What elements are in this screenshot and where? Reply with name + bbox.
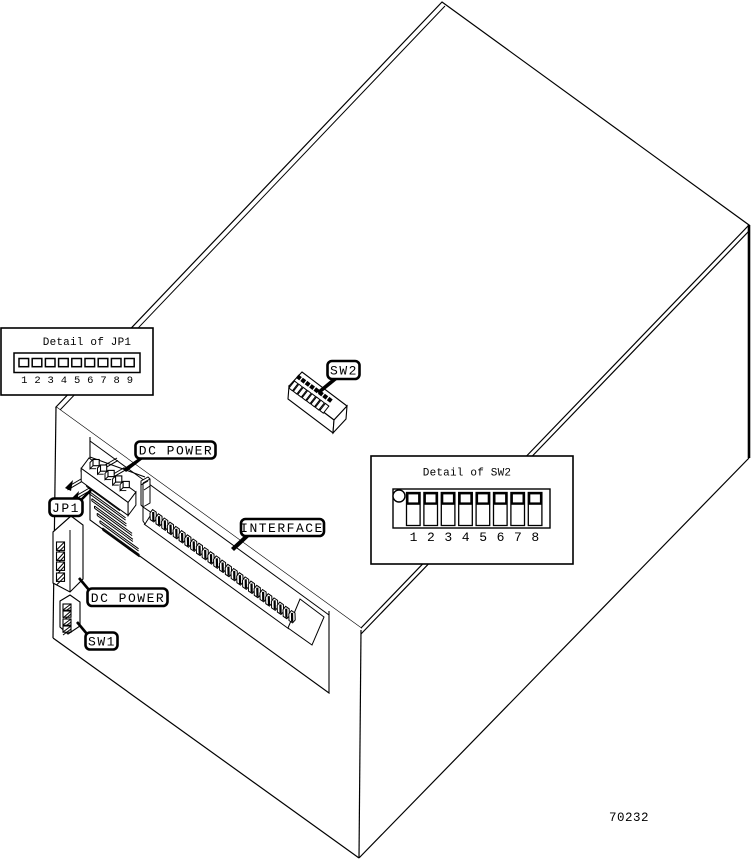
svg-text:DC POWER: DC POWER bbox=[91, 591, 165, 606]
svg-text:INTERFACE: INTERFACE bbox=[240, 521, 324, 536]
svg-text:Detail of JP1: Detail of JP1 bbox=[43, 337, 132, 349]
svg-text:Detail of SW2: Detail of SW2 bbox=[423, 468, 511, 480]
svg-text:5: 5 bbox=[74, 375, 80, 387]
svg-text:1: 1 bbox=[410, 530, 418, 545]
svg-text:SW1: SW1 bbox=[88, 635, 116, 650]
svg-text:SW2: SW2 bbox=[330, 364, 358, 379]
svg-text:2: 2 bbox=[427, 530, 435, 545]
svg-text:7: 7 bbox=[100, 375, 106, 387]
svg-text:6: 6 bbox=[497, 530, 505, 545]
svg-text:DC POWER: DC POWER bbox=[139, 444, 213, 459]
svg-text:8: 8 bbox=[114, 375, 120, 387]
svg-text:JP1: JP1 bbox=[52, 501, 80, 516]
svg-text:7: 7 bbox=[514, 530, 522, 545]
svg-text:1: 1 bbox=[21, 375, 27, 387]
svg-text:6: 6 bbox=[87, 375, 93, 387]
svg-text:4: 4 bbox=[462, 530, 470, 545]
svg-text:5: 5 bbox=[479, 530, 487, 545]
svg-text:3: 3 bbox=[48, 375, 54, 387]
svg-text:70232: 70232 bbox=[609, 811, 649, 825]
svg-text:4: 4 bbox=[61, 375, 67, 387]
svg-text:9: 9 bbox=[127, 375, 133, 387]
svg-text:8: 8 bbox=[531, 530, 539, 545]
svg-text:3: 3 bbox=[444, 530, 452, 545]
svg-text:2: 2 bbox=[34, 375, 40, 387]
